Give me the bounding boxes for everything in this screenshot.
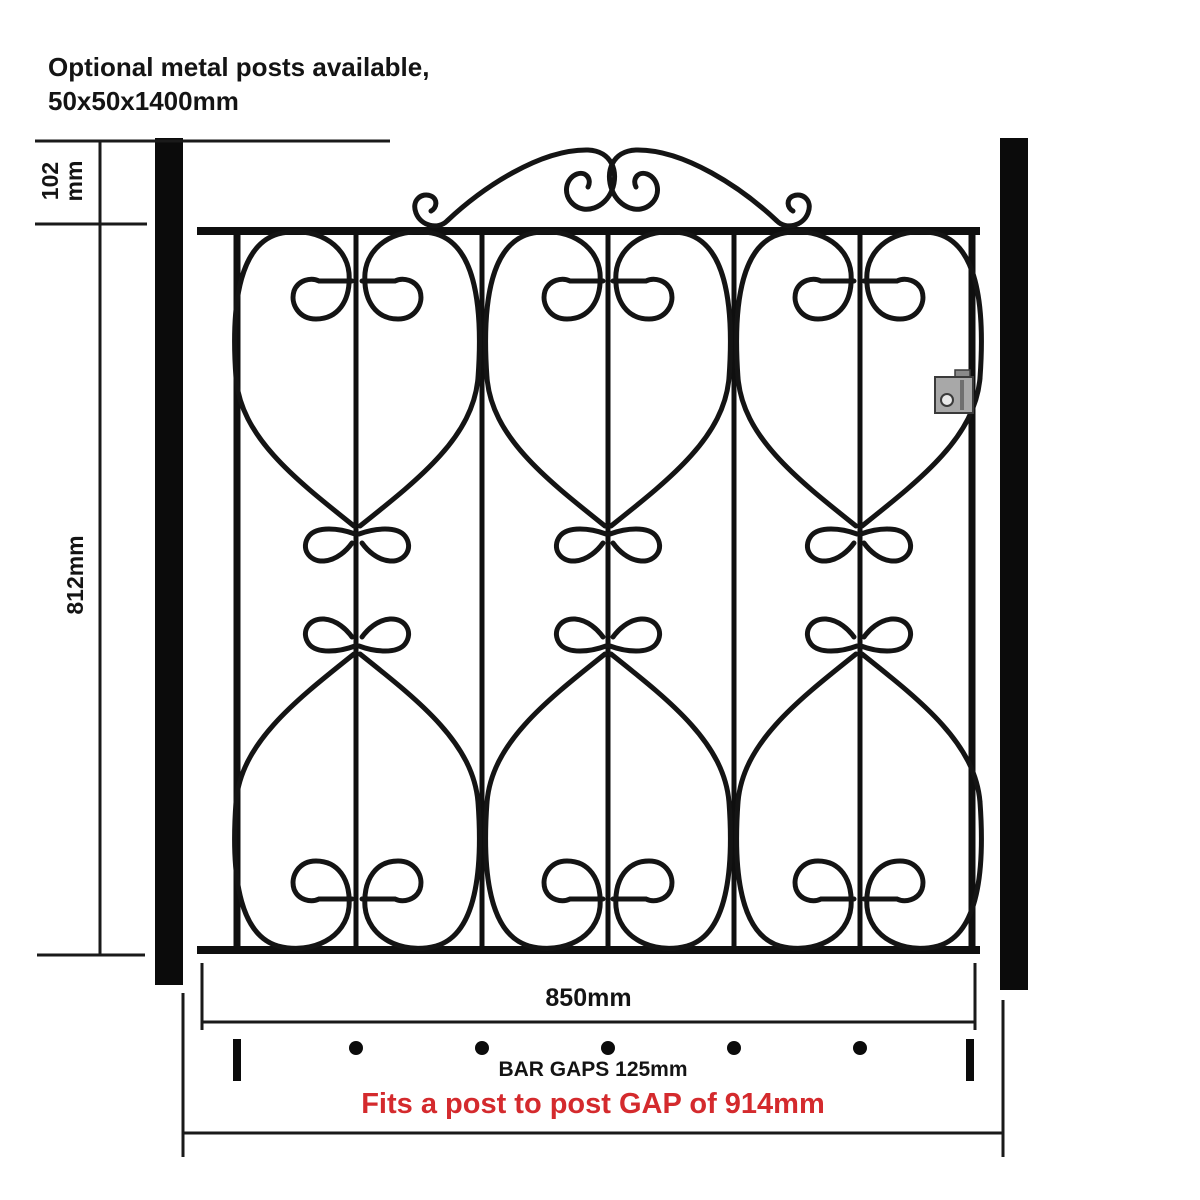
- optional-posts-note: Optional metal posts available, 50x50x14…: [48, 50, 429, 118]
- bar-gaps-label: BAR GAPS 125mm: [183, 1058, 1003, 1082]
- scroll-height-value: 102: [38, 161, 62, 202]
- right-post: [1000, 138, 1028, 990]
- gate-illustration: [0, 0, 1200, 1200]
- gate-height-dimension-label: 812mm: [63, 535, 87, 614]
- scroll-height-dimension-label: 102 mm: [38, 161, 86, 202]
- scroll-height-unit: mm: [62, 161, 86, 202]
- gate-latch-icon: [935, 370, 973, 413]
- left-post: [155, 138, 183, 985]
- gate-frame: [197, 231, 980, 950]
- height-dimension-lines: [35, 141, 390, 955]
- post-gap-label: Fits a post to post GAP of 914mm: [183, 1088, 1003, 1121]
- optional-posts-note-line2: 50x50x1400mm: [48, 84, 429, 118]
- optional-posts-note-line1: Optional metal posts available,: [48, 50, 429, 84]
- gate-diagram: Optional metal posts available, 50x50x14…: [0, 0, 1200, 1200]
- top-ornament: [415, 150, 810, 226]
- gate-width-dimension-label: 850mm: [202, 984, 975, 1013]
